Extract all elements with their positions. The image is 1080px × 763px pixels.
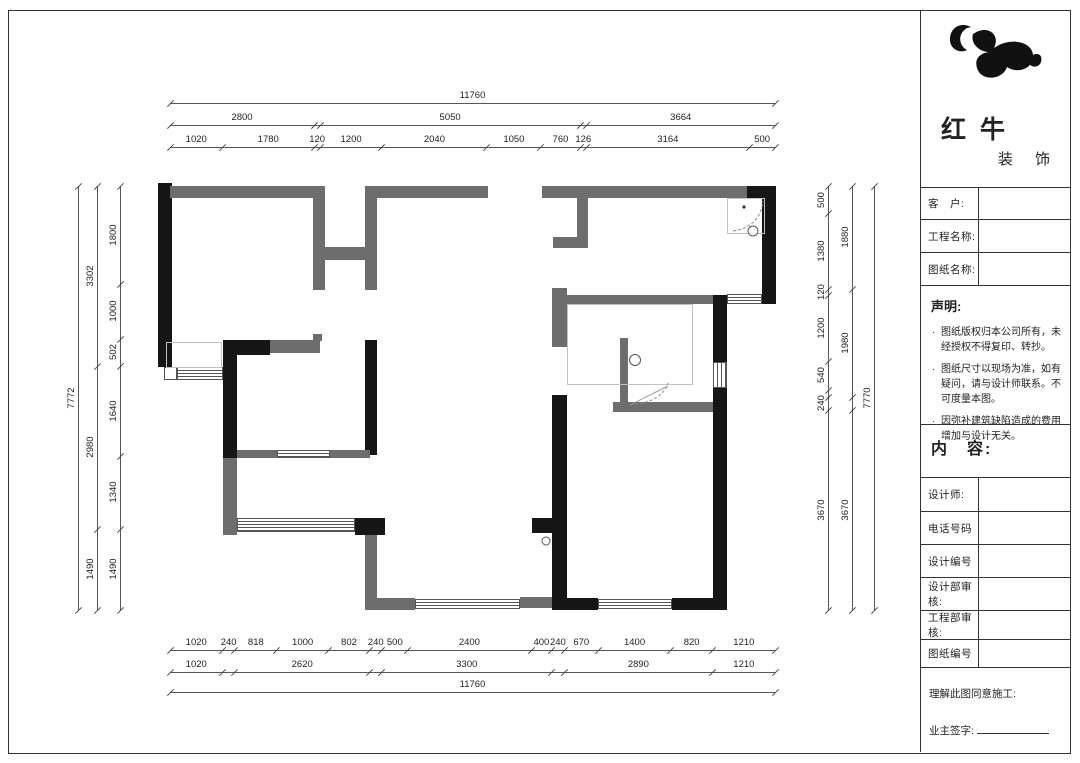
wall-bedroom-top-tab (313, 334, 322, 341)
field-value (979, 220, 1071, 252)
dimension-line (874, 186, 875, 610)
wall-hall-left (365, 340, 377, 455)
wall-right-lower-a (713, 295, 727, 362)
dimension-label: 2620 (280, 659, 324, 671)
wall-center-lower (552, 395, 567, 610)
dimension-label: 1210 (722, 659, 766, 671)
dimension-label: 502 (108, 330, 120, 374)
dimension-label: 1800 (108, 213, 120, 257)
wall-top-a (170, 186, 325, 198)
info-value (979, 545, 1071, 577)
info-value (979, 512, 1071, 544)
field-label: 客 户: (921, 188, 979, 219)
dimension-label: 11760 (451, 90, 495, 102)
dimension-label: 3302 (85, 254, 97, 298)
company-name: 红牛 (941, 110, 1071, 146)
dimension-label: 126 (561, 134, 605, 146)
dimension-label: 670 (559, 637, 603, 649)
agreement-text: 理解此图同意施工: (929, 686, 1063, 701)
dimension-label: 3670 (816, 488, 828, 532)
wall-bedroom-top-gray (270, 340, 320, 353)
field-label: 工程名称: (921, 220, 979, 252)
field-row-drawing: 图纸名称: (921, 253, 1071, 286)
wall-balcony-left (365, 535, 377, 600)
info-label: 设计师: (921, 478, 979, 511)
bay-window-outline (166, 342, 222, 368)
dimension-label: 818 (234, 637, 278, 649)
info-label: 设计部审核: (921, 578, 979, 610)
content-cell: 内 容: (921, 425, 1071, 478)
field-label: 图纸名称: (921, 253, 979, 285)
window-bottom-b (598, 599, 672, 609)
dimension-label: 500 (740, 134, 784, 146)
info-label: 设计编号 (921, 545, 979, 577)
info-row-design-audit: 设计部审核: (921, 578, 1071, 611)
company-logo-icon (937, 22, 1055, 108)
dimension-line (170, 650, 775, 651)
drawing-sheet: 1176028005050366410201780120120020401050… (0, 0, 1080, 763)
dimension-label: 2980 (85, 425, 97, 469)
statement-item: 图纸尺寸以现场为准，如有疑问，请与设计师联系。不可度量本图。 (931, 362, 1063, 407)
dimension-line (170, 125, 775, 126)
wall-bedroom-left-upper (223, 340, 237, 458)
niche-crossbar (313, 247, 377, 260)
info-label: 电话号码 (921, 512, 979, 544)
dimension-label: 3664 (659, 112, 703, 124)
niche-right-pier (365, 186, 377, 290)
dimension-line (170, 103, 775, 104)
niche-left-pier (313, 186, 325, 290)
dimension-label: 5050 (428, 112, 472, 124)
statement-cell: 声明: 图纸版权归本公司所有，未经授权不得复印、转抄。 图纸尺寸以现场为准，如有… (921, 286, 1071, 425)
window-left-hatch (177, 367, 223, 380)
wall-bottom-gray-b (520, 597, 552, 608)
dimension-label: 7770 (862, 376, 874, 420)
dimension-label: 1980 (840, 321, 852, 365)
dimension-label: 1400 (613, 637, 657, 649)
dimension-label: 1000 (108, 289, 120, 333)
wall-top-c (542, 186, 747, 198)
dimension-label: 1000 (281, 637, 325, 649)
info-value (979, 478, 1071, 511)
dimension-label: 1200 (329, 134, 373, 146)
dimension-line (170, 147, 775, 148)
dimension-label: 1380 (816, 229, 828, 273)
info-label: 图纸编号 (921, 640, 979, 667)
window-bottom-a (415, 599, 520, 609)
dimension-label: 1020 (174, 134, 218, 146)
wall-bath-bottom (613, 402, 713, 412)
dimension-label: 1200 (816, 306, 828, 350)
shower-area-outline (567, 304, 693, 385)
field-row-client: 客 户: (921, 188, 1071, 220)
wall-top-b (368, 186, 488, 198)
dimension-label: 7772 (66, 376, 78, 420)
dimension-label: 1210 (722, 637, 766, 649)
wall-baywin-left (237, 450, 277, 458)
dimension-line (170, 692, 775, 693)
dimension-label: 3164 (646, 134, 690, 146)
window-right-wall (713, 362, 727, 388)
statement-item: 图纸版权归本公司所有，未经授权不得复印、转抄。 (931, 325, 1063, 355)
signature-cell: 理解此图同意施工: 业主签字: (921, 668, 1071, 751)
dimension-label: 1490 (85, 547, 97, 591)
info-row-designer: 设计师: (921, 478, 1071, 512)
dimension-label: 500 (816, 178, 828, 222)
title-block: 红牛 装 饰 客 户: 工程名称: 图纸名称: 声明: 图纸版权归本公司所有，未… (920, 10, 1070, 752)
dimension-line (78, 186, 79, 610)
wall-bottom-gray-a (365, 598, 415, 610)
logo-cell: 红牛 装 饰 (921, 10, 1071, 188)
info-value (979, 578, 1071, 610)
window-cap-left (164, 367, 177, 380)
dimension-label: 1050 (492, 134, 536, 146)
info-row-phone: 电话号码 (921, 512, 1071, 545)
dimension-line (97, 186, 98, 610)
dimension-label: 2890 (616, 659, 660, 671)
window-step-right (727, 294, 762, 304)
info-row-eng-audit: 工程部审核: (921, 611, 1071, 640)
entry-stub (553, 237, 588, 248)
field-value (979, 253, 1071, 285)
info-row-design-no: 设计编号 (921, 545, 1071, 578)
signature-line (977, 723, 1049, 734)
wall-baywin-right (330, 450, 370, 458)
dimension-label: 2040 (412, 134, 456, 146)
shower-box-outline (727, 198, 765, 234)
statement-title: 声明: (931, 296, 1063, 315)
content-label: 内 容: (921, 425, 1071, 459)
wall-door-stub (532, 518, 552, 533)
dimension-label: 1340 (108, 470, 120, 514)
wall-left-exterior (158, 183, 172, 367)
wall-bottom-black-a (552, 598, 598, 610)
info-label: 工程部审核: (921, 611, 979, 639)
dimension-line (170, 672, 775, 673)
dimension-label: 1490 (108, 547, 120, 591)
dimension-label: 1640 (108, 389, 120, 433)
dimension-label: 820 (670, 637, 714, 649)
company-suffix: 装 饰 (921, 148, 1071, 169)
info-value (979, 611, 1071, 639)
field-row-project: 工程名称: (921, 220, 1071, 253)
dimension-line (120, 186, 121, 610)
wall-interior-upper (567, 295, 713, 304)
wall-pier-center (552, 288, 567, 347)
wall-bedroom-left-lower (223, 458, 237, 535)
dimension-label: 1020 (174, 659, 218, 671)
dimension-label: 3670 (840, 488, 852, 532)
dimension-label: 240 (816, 381, 828, 425)
dimension-label: 2400 (447, 637, 491, 649)
dimension-label: 3300 (445, 659, 489, 671)
info-row-drawing-no: 图纸编号 (921, 640, 1071, 668)
window-bedroom-bay (277, 450, 330, 458)
dimension-label: 11760 (451, 679, 495, 691)
wall-bottom-black-b (672, 598, 727, 610)
dimension-label: 1880 (840, 215, 852, 259)
dimension-label: 500 (373, 637, 417, 649)
info-value (979, 640, 1071, 667)
field-value (979, 188, 1071, 219)
wall-balcony-corner (355, 518, 385, 535)
wall-right-lower-b (713, 388, 727, 610)
dimension-label: 2800 (220, 112, 264, 124)
window-bedroom-lower (237, 518, 355, 532)
owner-sign-label: 业主签字: (929, 725, 974, 737)
dimension-label: 1780 (246, 134, 290, 146)
